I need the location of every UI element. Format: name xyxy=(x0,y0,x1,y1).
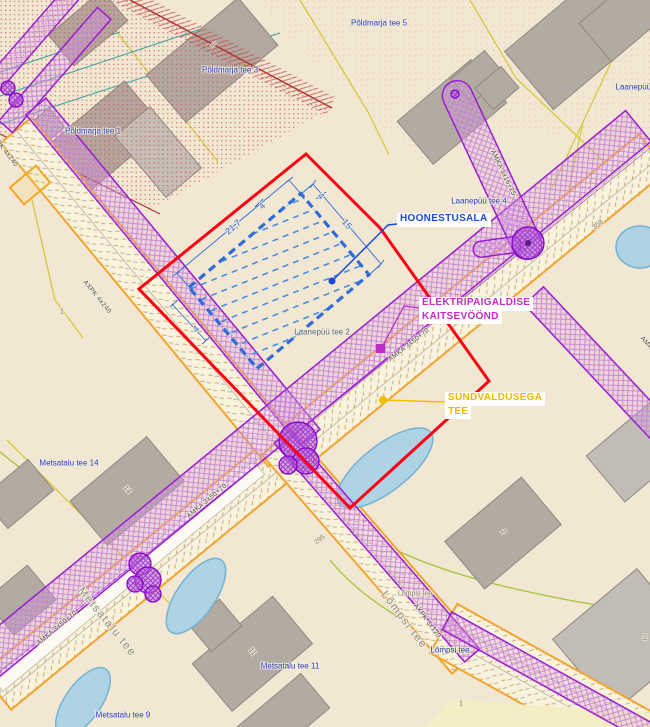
map-label: 295 xyxy=(313,534,327,547)
map-label: 11 xyxy=(247,647,257,657)
map-label: Lõmpsi tee xyxy=(430,646,469,655)
map-label: 21,7 xyxy=(223,218,243,237)
hoonestusala-label: HOONESTUSALA xyxy=(397,213,491,227)
map-label: Metsatalu tee 14 xyxy=(39,459,98,468)
kaitsevoond-label-line1: ELEKTRIPAIGALDISE xyxy=(419,297,533,311)
map-label: Metsatalu tee 11 xyxy=(261,662,320,671)
map-label: AMKA 3x50+70 xyxy=(387,327,431,363)
map-label: 4 xyxy=(191,324,201,335)
map-label: Lõmpsi tee xyxy=(379,589,430,651)
map-label: 4 xyxy=(316,191,327,201)
map-label: Metsatalu tee 9 xyxy=(96,711,151,720)
sundvaldus-label-line1: SUNDVALDUSEGA xyxy=(445,392,545,406)
sundvaldus-label-line2: TEE xyxy=(445,406,471,420)
sundvaldus-label: SUNDVALDUSEGA TEE xyxy=(445,392,545,419)
hoonestusala-label-text: HOONESTUSALA xyxy=(397,213,491,227)
map-labels-layer: Põldmarja tee 5Põldmarja tee 3Põldmarja … xyxy=(0,0,650,727)
map-label: AXPK 4x240 xyxy=(0,132,19,169)
map-label: 4 xyxy=(257,201,267,212)
map-label: Põldmarja tee 1 xyxy=(65,127,121,136)
map-label: Põldmarja tee 3 xyxy=(202,66,258,75)
map-label: AMKA 3x16+25 xyxy=(489,149,517,197)
map-label: 2 xyxy=(643,635,647,642)
map-label: Laanepüü tee 2 xyxy=(294,328,350,337)
map-label: AXPK 3x120 xyxy=(412,603,442,640)
map-label: 1 xyxy=(209,41,217,48)
map-label: AMKA 3x50+70 xyxy=(639,335,650,377)
map-label: 14 xyxy=(122,485,132,495)
map-label: 1 xyxy=(60,309,64,316)
map-label: AXPK 4x240 xyxy=(81,279,112,315)
map-label: Metsatalu tee xyxy=(75,585,138,659)
site-plan-map: Põldmarja tee 5Põldmarja tee 3Põldmarja … xyxy=(0,0,650,727)
map-label: 2 xyxy=(499,528,507,535)
map-label: Laanepüü tee 4 xyxy=(451,197,507,206)
map-label: Põldmarja tee 5 xyxy=(351,19,407,28)
map-label: Lõmpsi tee xyxy=(398,591,432,598)
map-label: AMKA 3x50+70 xyxy=(36,609,79,646)
kaitsevoond-label: ELEKTRIPAIGALDISE KAITSEVÖÖND xyxy=(419,297,533,324)
map-label: Laanepüü tee xyxy=(616,83,650,92)
map-label: AMKA 3x50+70 xyxy=(186,482,229,519)
map-label: 358 xyxy=(591,219,605,232)
map-label: 15 xyxy=(340,217,354,231)
kaitsevoond-label-line2: KAITSEVÖÖND xyxy=(419,311,502,325)
map-label: 1 xyxy=(459,701,463,708)
